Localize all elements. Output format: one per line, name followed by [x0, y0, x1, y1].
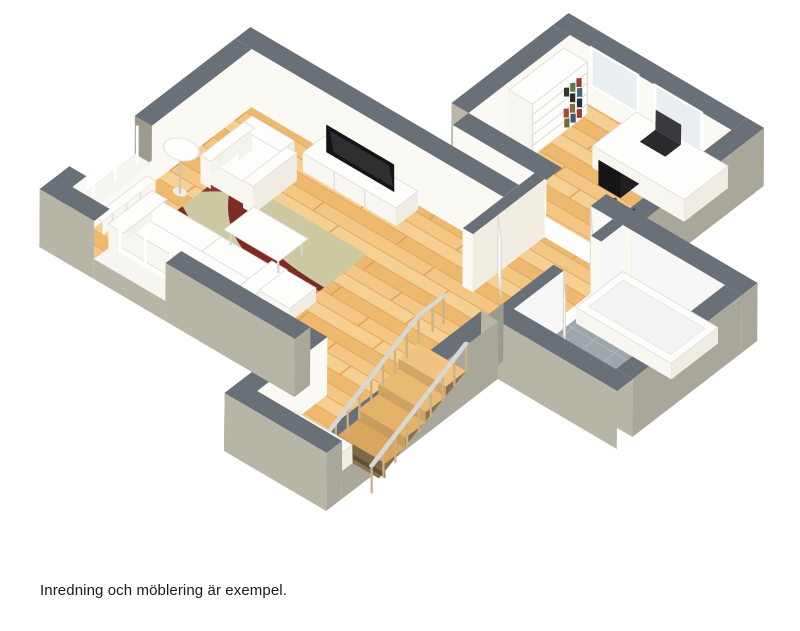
floor-plan-page: Inredning och möblering är exempel.	[0, 0, 800, 631]
caption: Inredning och möblering är exempel.	[40, 582, 287, 599]
apartment-3d-floorplan	[0, 0, 800, 631]
